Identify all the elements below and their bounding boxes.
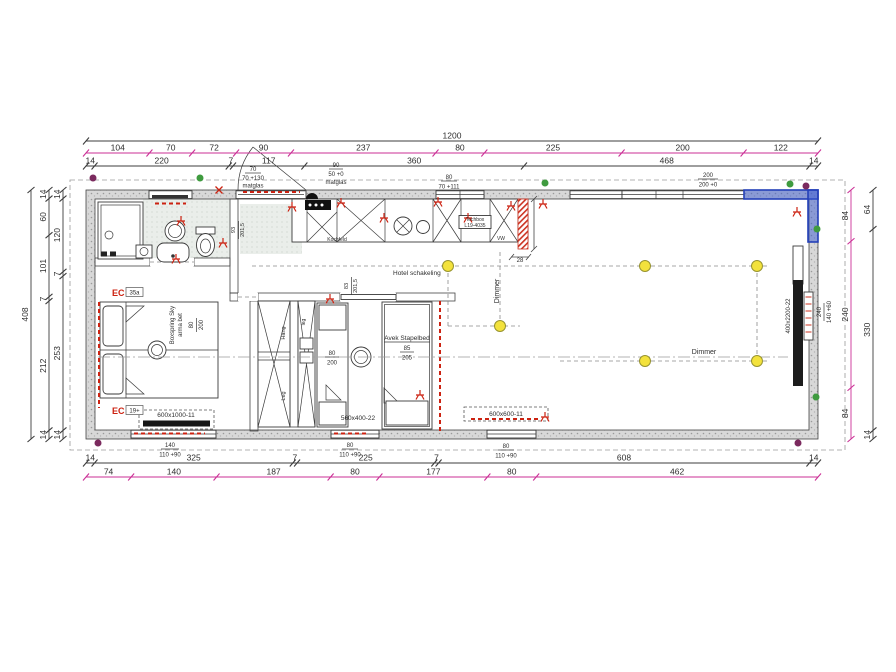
dim-label-bottom_magenta-5: 80 [507, 467, 517, 477]
dim-chain-top_magenta: 10470729023780225200122 [83, 143, 821, 157]
ceiling-light-icon [752, 261, 763, 272]
dim-label-bottom_magenta-6: 462 [670, 467, 684, 477]
label-window-right-wall: 240 140 +60 [817, 300, 833, 323]
bunk-name: Avek Stapelbed [384, 335, 430, 342]
dim-label-left_mid-3: 7 [38, 296, 48, 301]
dim-label-bottom_black-5: 608 [617, 453, 631, 463]
dim-chain-right_magenta: 8424084 [840, 187, 855, 442]
dim-label-top_magenta-0: 104 [111, 143, 125, 153]
floor-plan-drawing: 1200104707290237802252001221422071173604… [0, 0, 896, 672]
dim-label-left_inner-3: 253 [52, 346, 62, 360]
dim-label-left_mid-5: 14 [38, 430, 48, 440]
dim-label-top_black-3: 117 [262, 156, 276, 166]
dim-label-top_black-4: 360 [407, 156, 421, 166]
dim-chain-left_total: 408 [20, 187, 35, 442]
window-label-num: 200 [703, 173, 714, 179]
dim-label-top_black-0: 14 [86, 156, 96, 166]
hob-label: Kochfeld [327, 237, 347, 243]
blue-wall-top [744, 190, 818, 199]
label-window-living-top: 200 200 +0 [698, 173, 718, 189]
dim-label-bottom_magenta-2: 187 [266, 467, 280, 477]
dim-chain-left_mid: 1460101721214 [38, 187, 53, 442]
dim-label-left_inner-4: 14 [52, 430, 62, 440]
ceiling-sensor-icon [148, 341, 166, 359]
wardrobe-leg-label: Leg [281, 391, 287, 400]
wardrobe [258, 301, 290, 427]
bunk-bed [382, 302, 432, 429]
ceiling-light-icon [443, 261, 454, 272]
dim-label-right_magenta-2: 84 [840, 408, 850, 418]
dimmer-label: Dimmer [692, 349, 717, 356]
dim-label-bottom_black-1: 325 [187, 453, 201, 463]
floor-plan-page: 1200104707290237802252001221422071173604… [0, 0, 896, 672]
single-bed-num: 80 [329, 351, 336, 357]
pillow [103, 306, 123, 346]
dim-label-left_mid-4: 212 [38, 358, 48, 372]
dim-label-top_magenta-2: 72 [209, 143, 219, 153]
dim-chain-bottom_black: 143257225760814 [83, 453, 821, 467]
window-kitchen-top [436, 191, 484, 199]
techbox-line2: L19-4035 [464, 223, 485, 229]
dim-chain-left_inner: 14120725314 [52, 187, 67, 442]
window-label-den: 70 +111 [439, 185, 461, 191]
green-dot [787, 181, 794, 188]
dim-chain-right_black: 6433014 [862, 187, 877, 442]
door-size-num: 83 [344, 283, 350, 289]
dim-28-label: 28 [517, 258, 524, 264]
ceiling-light-icon [752, 356, 763, 367]
dim-label-top_magenta-8: 122 [774, 143, 788, 153]
window-label-num: 80 [347, 443, 354, 449]
dim-label-right_magenta-1: 240 [840, 307, 850, 321]
ec-tag: 19+ [129, 409, 140, 415]
bed-size-num: 80 [189, 321, 195, 328]
bunk-den: 205 [402, 356, 413, 362]
single-bed-den: 200 [327, 361, 338, 367]
washer [136, 245, 152, 258]
window-label-den: 50 +0 [328, 172, 344, 178]
window-label-den: 70 +130 [242, 176, 265, 182]
dim-label-top_magenta-7: 200 [675, 143, 689, 153]
window-living-top-a [570, 191, 622, 199]
dim-chain-bottom_magenta: 741401878017780462 [83, 467, 821, 481]
toilet-cistern [196, 227, 215, 234]
green-dot [542, 180, 549, 187]
dim-label-top_magenta-3: 90 [259, 143, 269, 153]
bedroom-unit-label: 600x1000-11 [157, 412, 195, 419]
bedroom-door-opening [238, 293, 258, 301]
bed-size-den: 200 [199, 319, 205, 330]
dim-label-top_black-1: 220 [155, 156, 169, 166]
ceiling-light-icon [640, 356, 651, 367]
door-size-den: 201,5 [240, 223, 246, 237]
green-dot [814, 226, 821, 233]
radiator [804, 292, 813, 340]
ec-text: EC [112, 288, 125, 298]
dim-label-bottom_magenta-3: 80 [350, 467, 360, 477]
dim-label-right_black-2: 14 [862, 430, 872, 440]
window-living-bottom [487, 430, 536, 438]
dim-label-bottom_magenta-1: 140 [167, 467, 181, 477]
wall-unit-top [793, 246, 803, 284]
dim-label-top_magenta-1: 70 [166, 143, 176, 153]
dim-label-right_black-0: 64 [862, 205, 872, 215]
window-label-note: matglas [242, 184, 263, 190]
window-kids-bottom [331, 430, 379, 438]
ec-tag: 35a [129, 291, 140, 297]
dim-label-bottom_magenta-0: 74 [104, 467, 114, 477]
door-size-den: 201,5 [353, 279, 359, 293]
dim-label-left_total-0: 408 [20, 307, 30, 321]
wall-unit-dark [793, 280, 803, 386]
vw-label: VW [497, 236, 505, 242]
dim-label-bottom_magenta-4: 177 [426, 467, 440, 477]
ec-text: EC [112, 406, 125, 416]
dim-label-bottom_black-0: 14 [86, 453, 96, 463]
bedroom-sideboard [143, 421, 210, 427]
door-size-num: 93 [231, 227, 237, 233]
dim-chain-top_black: 14220711736046814 [83, 156, 821, 170]
window-living-top-b [622, 191, 744, 199]
living-unit-label: 600x600-11 [489, 411, 523, 418]
radiator-tag-label: 400x2200-22 [786, 298, 792, 334]
dim-label-left_mid-1: 60 [38, 212, 48, 222]
label-window-living-bottom: 80 110 +90 [495, 444, 517, 460]
green-dot [813, 394, 820, 401]
label-window-bath-top: 70 70 +130 matglas [242, 167, 265, 190]
bed-brand: Boxspring Sky [170, 306, 176, 344]
window-label-den: 200 +0 [699, 183, 718, 189]
sink-basin-2 [417, 221, 430, 234]
dim-label-bottom_black-6: 14 [809, 453, 819, 463]
purple-dot [95, 440, 102, 447]
ceiling-light-icon [640, 261, 651, 272]
dimmer-label-vertical: Dimmer [494, 278, 501, 303]
dim-label-top_magenta-5: 80 [455, 143, 465, 153]
ec-label-bottom: EC 19+ [112, 406, 143, 417]
window-label-num: 240 [817, 306, 823, 317]
window-label-note: matglas [325, 180, 346, 186]
window-label-den: 140 +60 [827, 300, 833, 323]
window-label-den: 110 +90 [495, 454, 517, 460]
purple-dot [803, 183, 810, 190]
window-label-num: 80 [503, 444, 510, 450]
dim-label-left_inner-2: 7 [52, 271, 62, 276]
dim-label-top_black-6: 14 [809, 156, 819, 166]
label-window-kitchen-top: 80 70 +111 [439, 175, 461, 191]
kids-unit-label: 560x400-22 [341, 415, 376, 422]
ceiling-light-icon [495, 321, 506, 332]
purple-dot [795, 440, 802, 447]
window-label-num: 70 [250, 167, 257, 173]
green-dot [197, 175, 204, 182]
dim-chain-top_total: 1200 [83, 131, 821, 145]
label-window-bedroom-bottom: 140 110 +90 [159, 443, 181, 459]
dim-label-left_mid-0: 14 [38, 189, 48, 199]
bed-type: arma bet [178, 313, 184, 337]
dim-label-bottom_black-3: 225 [359, 453, 373, 463]
dim-label-top_black-2: 7 [229, 156, 234, 166]
dim-label-right_black-1: 330 [862, 322, 872, 336]
wardrobe-hang-label: Hang [281, 326, 287, 339]
dim-label-top_black-5: 468 [660, 156, 674, 166]
dim-label-left_mid-2: 101 [38, 259, 48, 273]
label-window-kids-bottom: 80 110 +90 [339, 443, 361, 459]
tech-column [518, 199, 528, 249]
purple-dot [90, 175, 97, 182]
window-label-den: 110 +90 [339, 453, 361, 459]
dim-label-top_total-0: 1200 [443, 131, 462, 141]
window-label-num: 140 [165, 443, 176, 449]
pillow [103, 354, 123, 394]
blue-wall-right [808, 190, 818, 242]
bunk-num: 85 [404, 346, 411, 352]
window-label-num: 90 [333, 163, 340, 169]
dim-label-top_magenta-6: 225 [546, 143, 560, 153]
dim-label-bottom_black-4: 7 [434, 453, 439, 463]
hotel-switch-label: Hotel schakeling [393, 270, 441, 277]
dim-label-right_magenta-0: 84 [840, 211, 850, 221]
kids-pocket-door [340, 293, 396, 301]
window-bedroom-bottom [131, 430, 216, 438]
dim-label-bottom_black-2: 7 [293, 453, 298, 463]
window-label-den: 110 +90 [159, 453, 181, 459]
ec-label-top: EC 35a [112, 288, 143, 299]
washbasin-icon [165, 221, 185, 241]
dim-label-top_magenta-4: 237 [356, 143, 370, 153]
window-label-num: 80 [446, 175, 453, 181]
dim-label-left_inner-0: 14 [52, 189, 62, 199]
dim-label-left_inner-1: 120 [52, 228, 62, 242]
cabinet-leg-label: leg [301, 318, 307, 325]
